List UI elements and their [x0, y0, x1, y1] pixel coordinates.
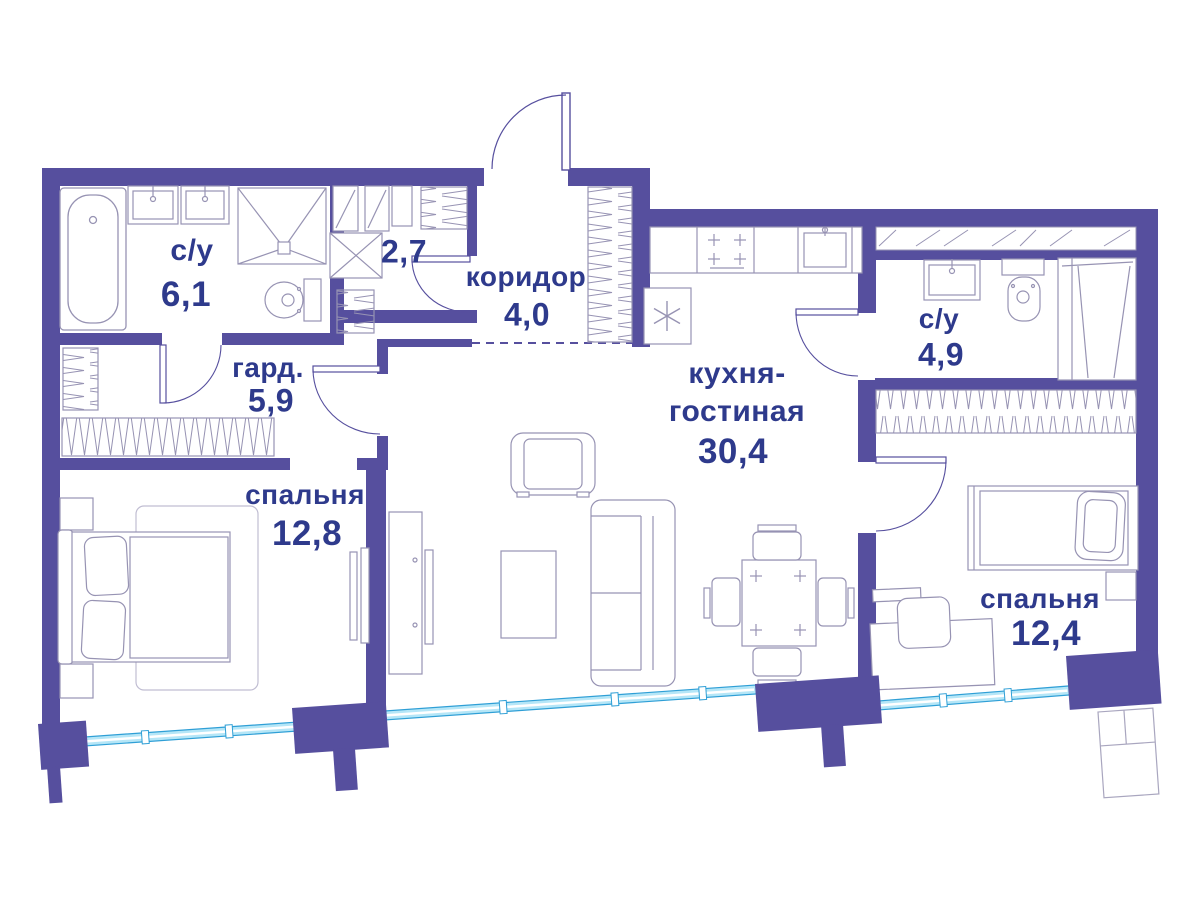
room-label-wardrobe-area: 5,9 — [248, 383, 294, 420]
tv — [425, 550, 433, 644]
room-label-laundry-area: 2,7 — [381, 234, 427, 271]
shower1 — [238, 188, 326, 264]
room-label-bedroom2-area: 12,4 — [1011, 614, 1081, 654]
dining-table — [742, 560, 816, 646]
bathroom2-cabinets — [876, 227, 1136, 250]
toilet2 — [1002, 259, 1044, 321]
floor-plan: с/у 6,1 2,7 коридор 4,0 гард. 5,9 спальн… — [0, 0, 1200, 902]
entrance-door — [492, 93, 570, 170]
chair — [753, 648, 801, 676]
window-segment-bedroom1 — [84, 720, 299, 748]
room-label-kitchen-name-line1: кухня- — [688, 357, 785, 391]
pillow — [1074, 491, 1125, 561]
room-label-bedroom1-area: 12,8 — [272, 514, 342, 554]
nightstand — [60, 664, 93, 698]
room-label-wardrobe-name: гард. — [232, 352, 304, 384]
room-label-bath1-name: с/у — [170, 234, 213, 268]
wardrobe-door — [313, 366, 380, 434]
mattress — [130, 537, 228, 658]
bathtub — [60, 188, 126, 330]
window-segment-living — [384, 683, 757, 722]
tv-panel — [350, 552, 357, 640]
fridge-snowflake-icon — [644, 288, 691, 344]
bed-headboard — [58, 530, 73, 664]
nightstand — [60, 498, 93, 530]
tv-console — [389, 512, 422, 674]
dining-set — [704, 525, 854, 686]
pillow — [81, 600, 126, 660]
room-label-bath2-area: 4,9 — [918, 337, 964, 374]
room-label-bedroom1-name: спальня — [245, 479, 365, 511]
bedroom2-wardrobe — [876, 390, 1136, 433]
room-label-bedroom2-name: спальня — [980, 583, 1100, 615]
living-furniture — [389, 433, 675, 686]
balcony-outline — [1098, 708, 1159, 798]
double-sink — [128, 186, 229, 224]
bedroom2-door — [876, 457, 946, 531]
corridor-closet — [588, 187, 632, 342]
chair — [818, 578, 846, 626]
bathroom2-door — [796, 309, 858, 376]
room-label-kitchen-area: 30,4 — [698, 432, 768, 472]
room-label-bath1-area: 6,1 — [161, 275, 211, 315]
coffee-table — [501, 551, 556, 638]
nightstand — [1106, 572, 1136, 600]
room-label-corridor-area: 4,0 — [504, 297, 550, 334]
shower2 — [1058, 258, 1136, 380]
room-label-kitchen-name-line2: гостиная — [669, 395, 805, 429]
tv-panel — [361, 548, 369, 643]
bathroom1-door — [160, 345, 221, 403]
bathroom2-sink — [924, 259, 980, 300]
floor-plan-drawing — [0, 0, 1200, 902]
pillow — [84, 536, 129, 596]
toilet1 — [265, 279, 321, 321]
desk-chair — [897, 597, 951, 649]
room-label-bath2-name: с/у — [919, 303, 959, 335]
room-label-corridor-name: коридор — [466, 261, 587, 293]
chair — [753, 532, 801, 560]
chair — [712, 578, 740, 626]
kitchen-counter — [650, 227, 862, 273]
